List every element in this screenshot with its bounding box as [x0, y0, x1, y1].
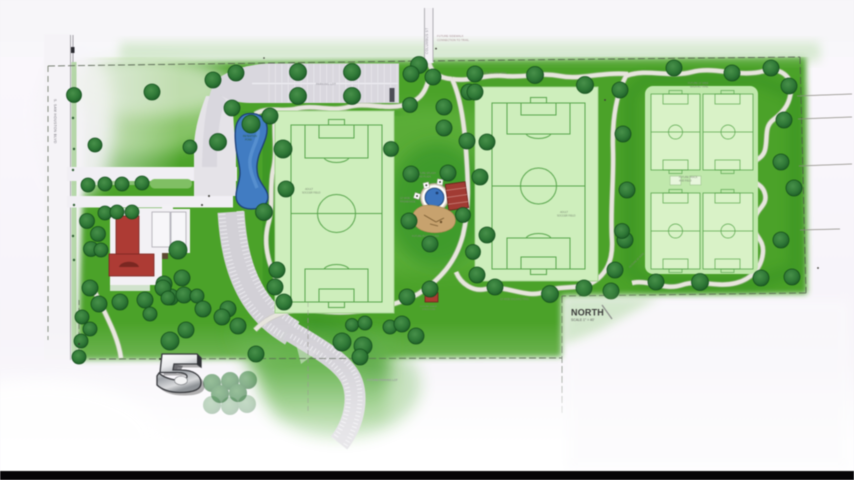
svg-text:AND FIELD: AND FIELD: [679, 180, 692, 183]
svg-text:PAD PLAZA: PAD PLAZA: [418, 176, 431, 179]
svg-text:POND: POND: [245, 139, 252, 142]
svg-text:COLUMBUS ST: COLUMBUS ST: [425, 28, 429, 54]
svg-text:SCALE 1" = 40': SCALE 1" = 40': [571, 318, 595, 322]
svg-text:SOCCER FIELD: SOCCER FIELD: [302, 192, 321, 195]
svg-text:SOCCER FIELD: SOCCER FIELD: [557, 215, 576, 218]
svg-text:NORTH: NORTH: [571, 308, 604, 318]
svg-text:PROMENADE: PROMENADE: [400, 201, 416, 204]
svg-text:FUTURE PARKING LOT: FUTURE PARKING LOT: [367, 378, 398, 382]
svg-text:CONNECTION TO TRAIL: CONNECTION TO TRAIL: [437, 38, 469, 42]
svg-text:WALKING TRAIL: WALKING TRAIL: [690, 86, 709, 89]
svg-text:10' WIDE WALKING TRAIL: 10' WIDE WALKING TRAIL: [500, 298, 530, 301]
svg-text:FUTURE SHADE: FUTURE SHADE: [420, 305, 438, 308]
svg-text:S. SAM HOUSTON BLVD: S. SAM HOUSTON BLVD: [53, 99, 57, 144]
svg-text:STRUCTURE: STRUCTURE: [422, 309, 436, 311]
svg-text:PARKING LOT: PARKING LOT: [316, 82, 336, 86]
